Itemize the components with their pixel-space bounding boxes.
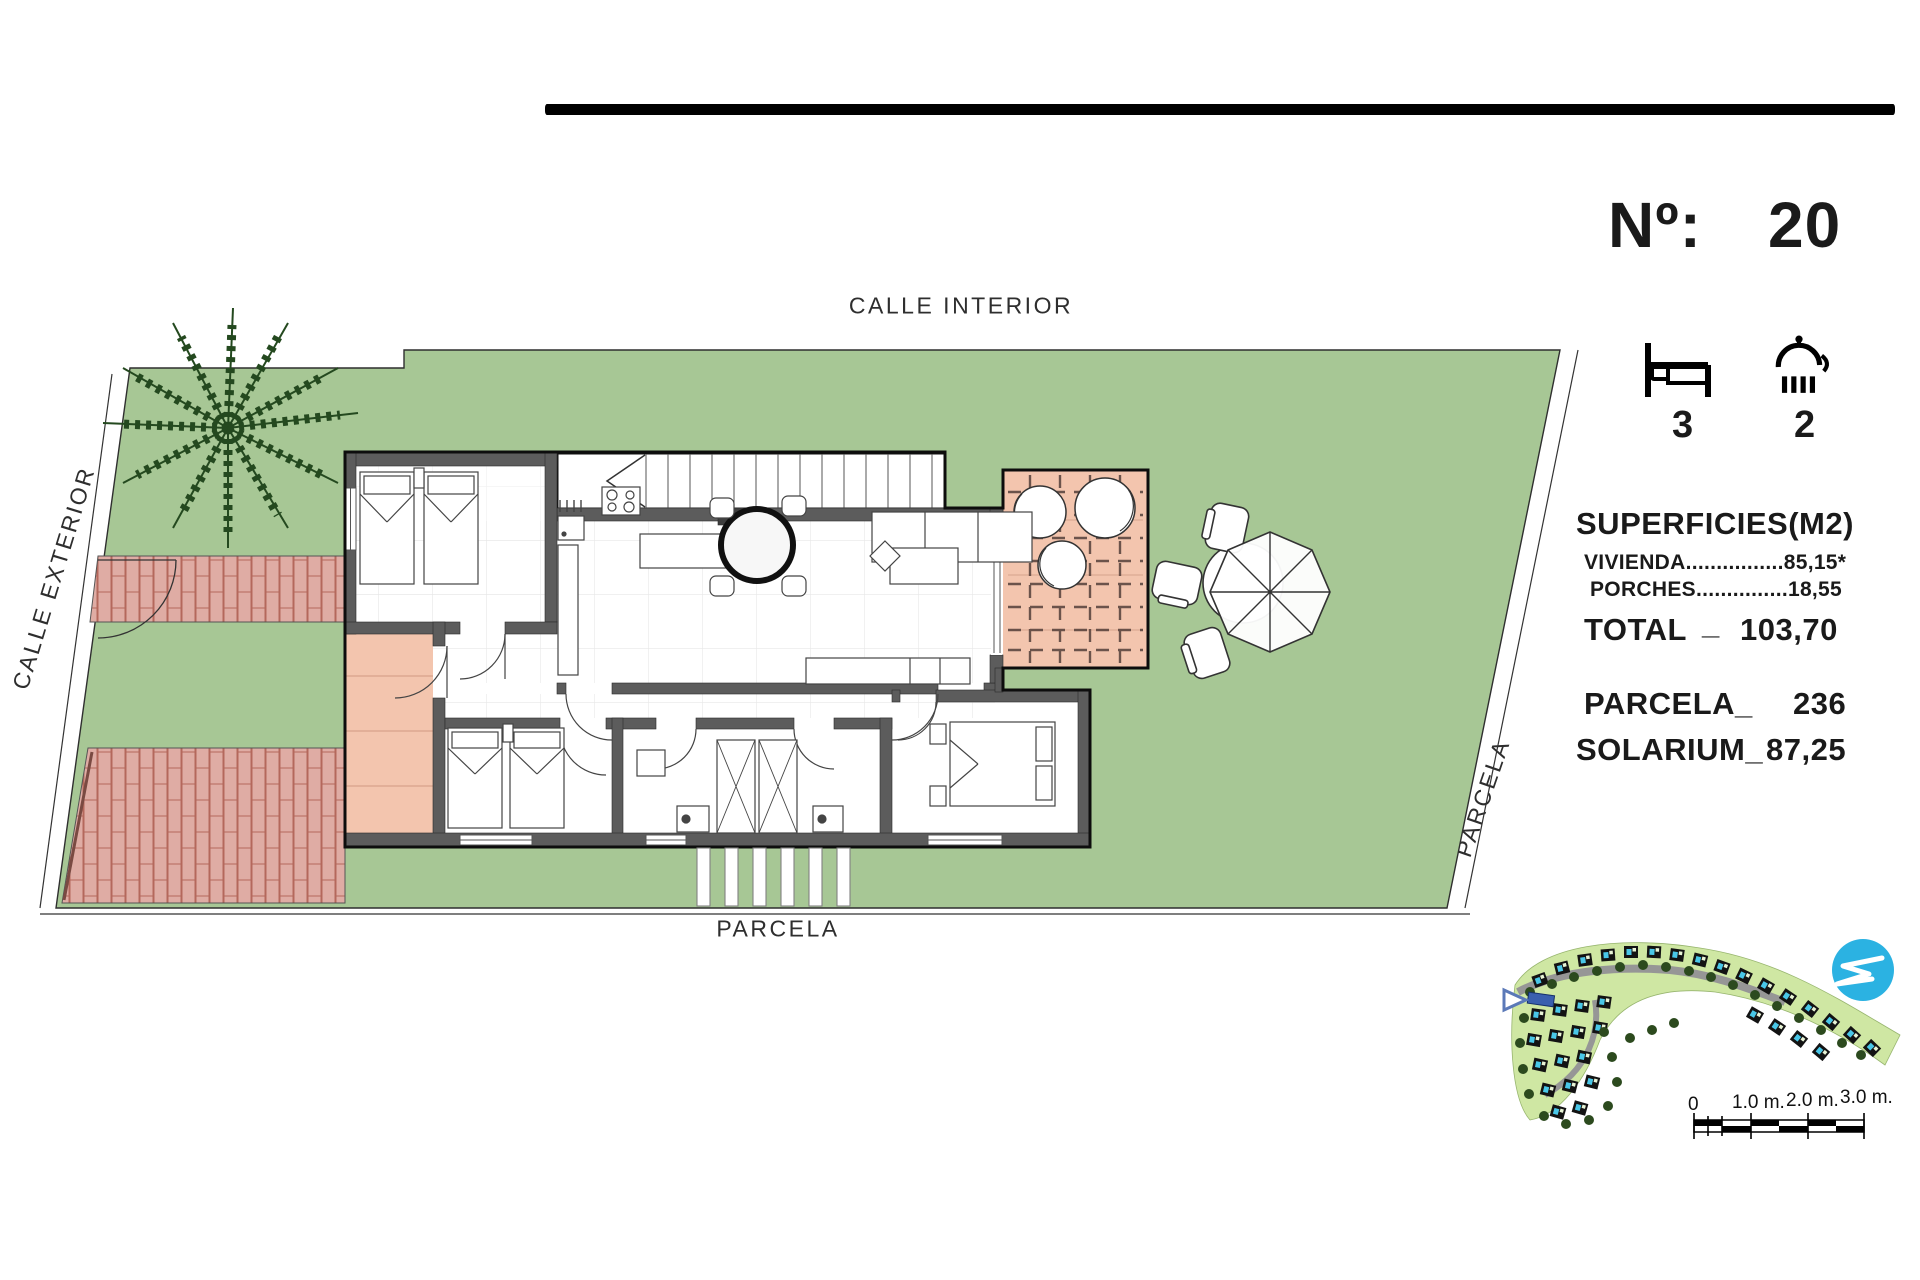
house-footprint (345, 452, 1148, 847)
brick-parking (62, 748, 345, 903)
porche-2-floor (1003, 470, 1148, 668)
plan-drawing (0, 0, 1920, 1280)
scale-bar (1694, 1113, 1864, 1139)
developer-logo-icon (1832, 939, 1894, 1001)
masterplan-minimap (1504, 939, 1900, 1129)
plan-sheet: { "header": { "calle_interior": "CALLE I… (0, 0, 1920, 1280)
porche-1-floor (345, 634, 433, 833)
parasol-icon (1210, 532, 1330, 652)
